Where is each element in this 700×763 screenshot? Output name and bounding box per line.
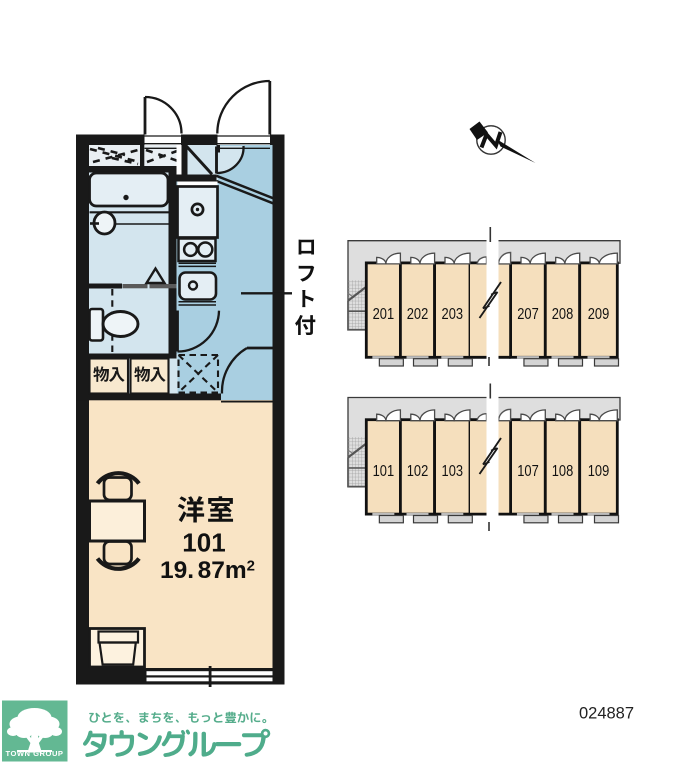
svg-text:203: 203: [442, 306, 464, 323]
svg-text:102: 102: [407, 463, 429, 480]
svg-text:101: 101: [182, 528, 225, 558]
svg-text:107: 107: [517, 463, 539, 480]
svg-text:024887: 024887: [579, 705, 634, 723]
svg-text:201: 201: [373, 306, 395, 323]
svg-text:202: 202: [407, 306, 429, 323]
svg-text:TOWN GROUP: TOWN GROUP: [5, 749, 63, 758]
svg-text:19.87m2: 19.87m2: [160, 557, 255, 584]
svg-text:208: 208: [552, 306, 574, 323]
svg-text:109: 109: [588, 463, 610, 480]
svg-text:108: 108: [552, 463, 574, 480]
svg-text:209: 209: [588, 306, 610, 323]
svg-text:207: 207: [517, 306, 539, 323]
svg-text:101: 101: [373, 463, 395, 480]
svg-text:103: 103: [442, 463, 464, 480]
